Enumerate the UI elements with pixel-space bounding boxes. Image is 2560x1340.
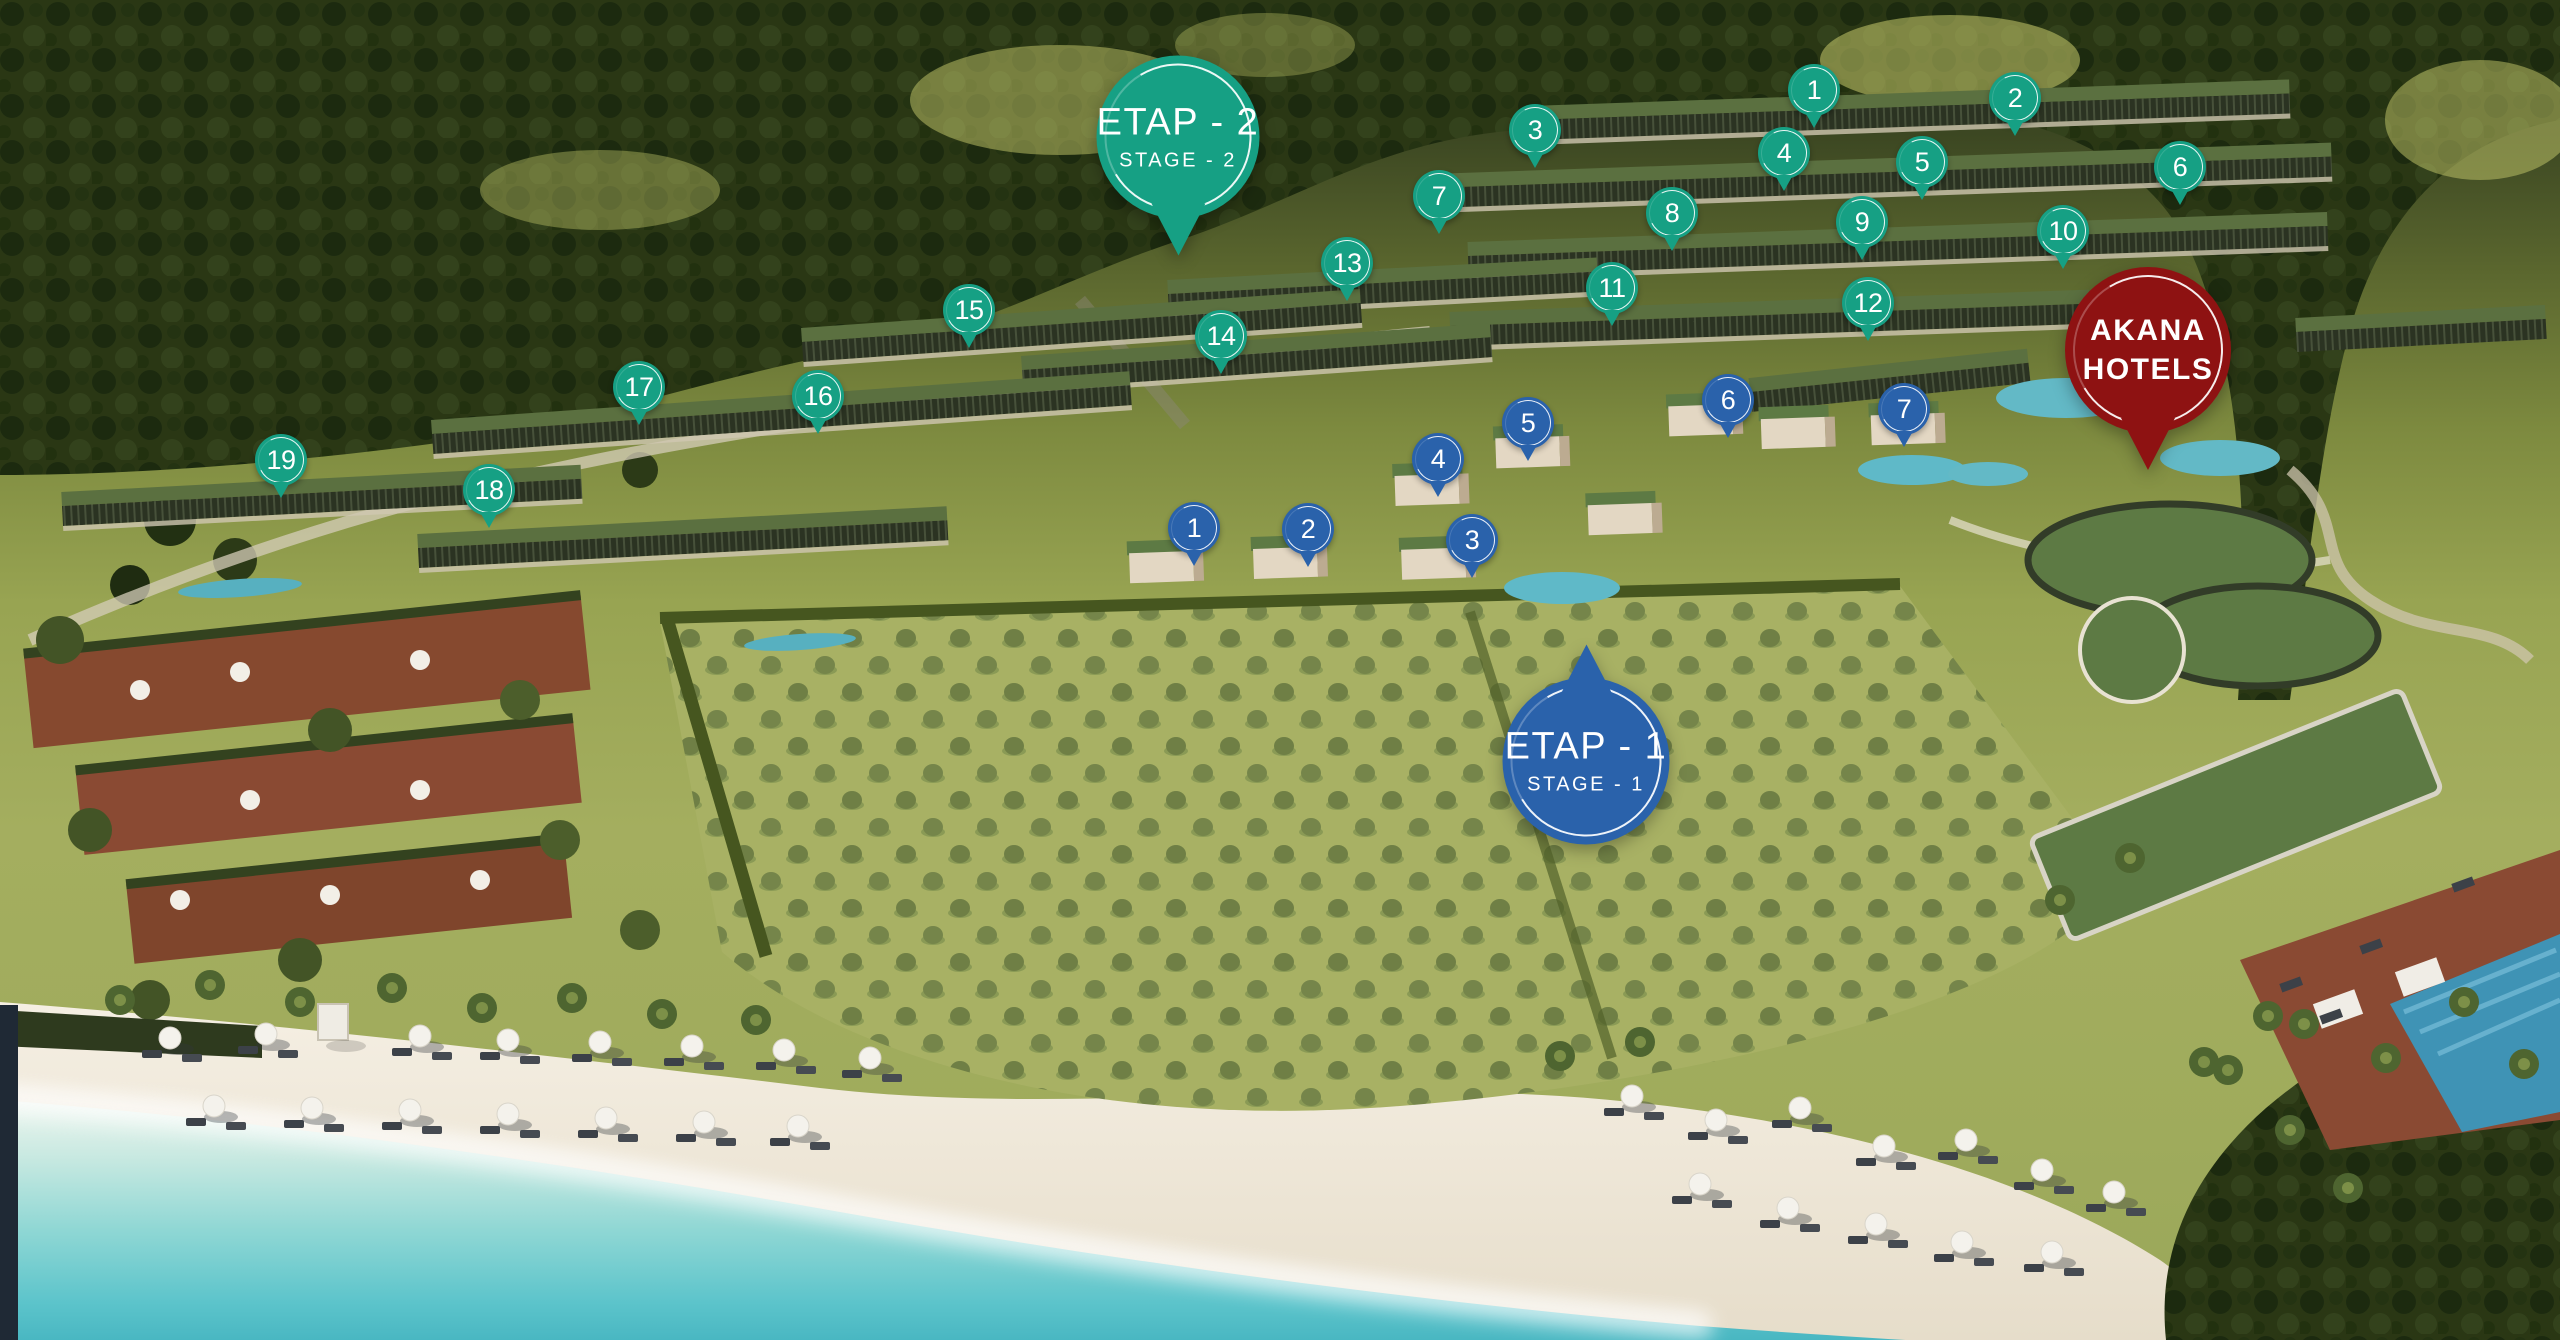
pin-number: 18 — [474, 475, 503, 506]
stage2-pin-19[interactable]: 19 — [255, 434, 307, 486]
badge-subtitle: STAGE - 2 — [1119, 150, 1237, 173]
pin-number: 11 — [1598, 273, 1625, 304]
stage2-badge[interactable]: ETAP - 2STAGE - 2 — [1097, 56, 1260, 219]
stage2-pin-15[interactable]: 15 — [943, 284, 995, 336]
stage2-pin-4[interactable]: 4 — [1758, 127, 1810, 179]
stage2-pin-5[interactable]: 5 — [1896, 136, 1948, 188]
stage1-pin-3[interactable]: 3 — [1446, 514, 1498, 566]
pin-number: 12 — [1853, 288, 1882, 319]
pin-number: 7 — [1897, 394, 1912, 425]
pin-number: 5 — [1521, 408, 1536, 439]
stage2-pin-1[interactable]: 1 — [1788, 64, 1840, 116]
stage1-pin-7[interactable]: 7 — [1878, 383, 1930, 435]
pin-number: 7 — [1432, 181, 1447, 212]
stage2-pin-16[interactable]: 16 — [792, 370, 844, 422]
stage2-pin-11[interactable]: 11 — [1586, 262, 1638, 314]
badge-title: ETAP - 2 — [1097, 102, 1260, 145]
stage2-pin-12[interactable]: 12 — [1842, 277, 1894, 329]
pin-number: 1 — [1187, 513, 1202, 544]
pin-number: 16 — [803, 381, 832, 412]
stage2-pin-3[interactable]: 3 — [1509, 104, 1561, 156]
pin-number: 4 — [1431, 444, 1446, 475]
pin-number: 3 — [1528, 115, 1543, 146]
badge-line: AKANA — [2090, 311, 2206, 350]
stage2-pin-10[interactable]: 10 — [2037, 205, 2089, 257]
pin-number: 1 — [1807, 75, 1822, 106]
pin-number: 15 — [954, 295, 983, 326]
marker-layer: 123456789101112131415161718191234567ETAP… — [0, 0, 2560, 1340]
stage1-pin-1[interactable]: 1 — [1168, 502, 1220, 554]
pin-number: 10 — [2048, 216, 2077, 247]
pin-number: 14 — [1206, 321, 1235, 352]
stage1-pin-6[interactable]: 6 — [1702, 374, 1754, 426]
pin-number: 13 — [1332, 248, 1361, 279]
pin-number: 9 — [1855, 207, 1870, 238]
akana-hotels-badge[interactable]: AKANAHOTELS — [2065, 267, 2231, 433]
badge-title: ETAP - 1 — [1505, 726, 1668, 769]
stage1-pin-2[interactable]: 2 — [1282, 503, 1334, 555]
pin-number: 19 — [266, 445, 295, 476]
pin-number: 5 — [1915, 147, 1930, 178]
resort-site-plan: 123456789101112131415161718191234567ETAP… — [0, 0, 2560, 1340]
stage1-badge[interactable]: ETAP - 1STAGE - 1 — [1503, 678, 1670, 845]
pin-number: 3 — [1465, 525, 1480, 556]
stage2-pin-17[interactable]: 17 — [613, 361, 665, 413]
pin-number: 4 — [1777, 138, 1792, 169]
pin-number: 8 — [1665, 198, 1680, 229]
stage2-pin-6[interactable]: 6 — [2154, 141, 2206, 193]
stage2-pin-13[interactable]: 13 — [1321, 237, 1373, 289]
pin-number: 6 — [1721, 385, 1736, 416]
stage2-pin-18[interactable]: 18 — [463, 464, 515, 516]
badge-subtitle: STAGE - 1 — [1527, 774, 1645, 797]
stage1-pin-5[interactable]: 5 — [1502, 397, 1554, 449]
stage2-pin-9[interactable]: 9 — [1836, 196, 1888, 248]
stage2-pin-7[interactable]: 7 — [1413, 170, 1465, 222]
stage2-pin-2[interactable]: 2 — [1989, 72, 2041, 124]
stage1-pin-4[interactable]: 4 — [1412, 433, 1464, 485]
stage2-pin-8[interactable]: 8 — [1646, 187, 1698, 239]
pin-number: 6 — [2173, 152, 2188, 183]
stage2-pin-14[interactable]: 14 — [1195, 310, 1247, 362]
pin-number: 2 — [2008, 83, 2023, 114]
pin-number: 2 — [1301, 514, 1316, 545]
badge-line: HOTELS — [2083, 350, 2214, 389]
pin-number: 17 — [624, 372, 653, 403]
